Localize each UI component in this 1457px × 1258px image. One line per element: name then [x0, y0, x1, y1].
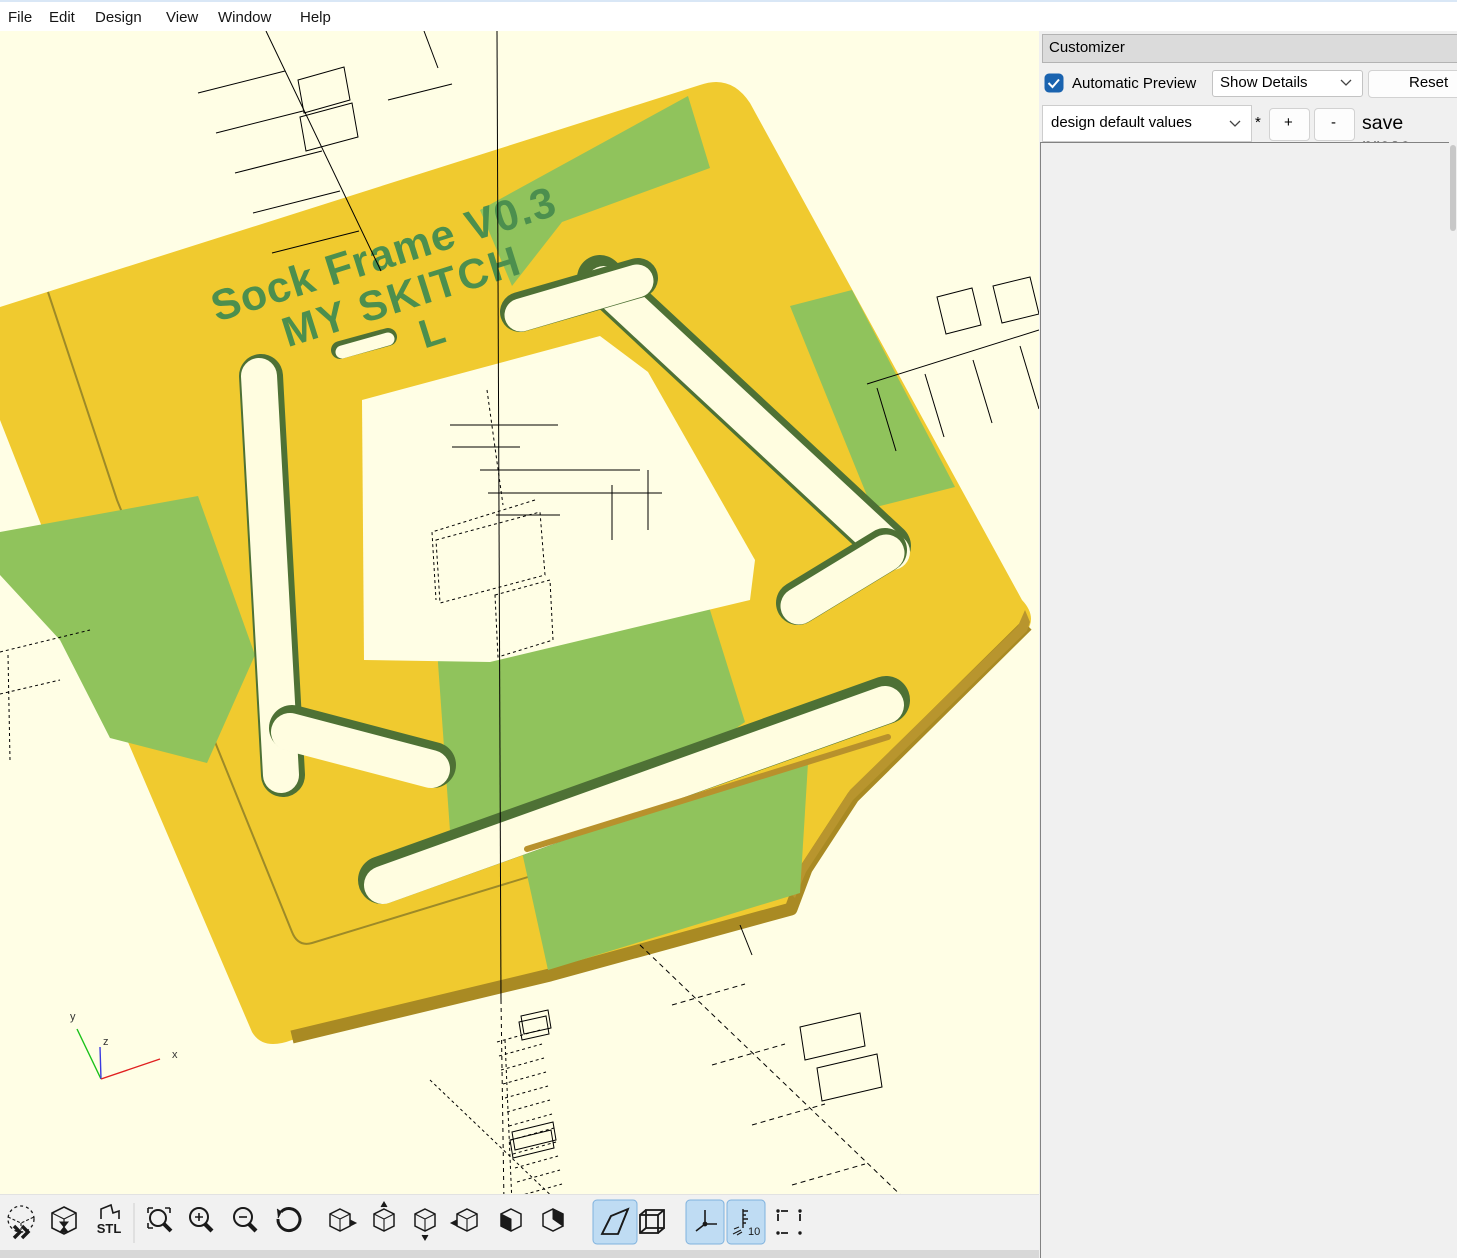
svg-text:STL: STL	[97, 1221, 122, 1236]
svg-text:x: x	[172, 1049, 178, 1061]
svg-text:y: y	[70, 1011, 76, 1023]
svg-text:z: z	[103, 1036, 109, 1048]
svg-text:10: 10	[748, 1226, 760, 1238]
